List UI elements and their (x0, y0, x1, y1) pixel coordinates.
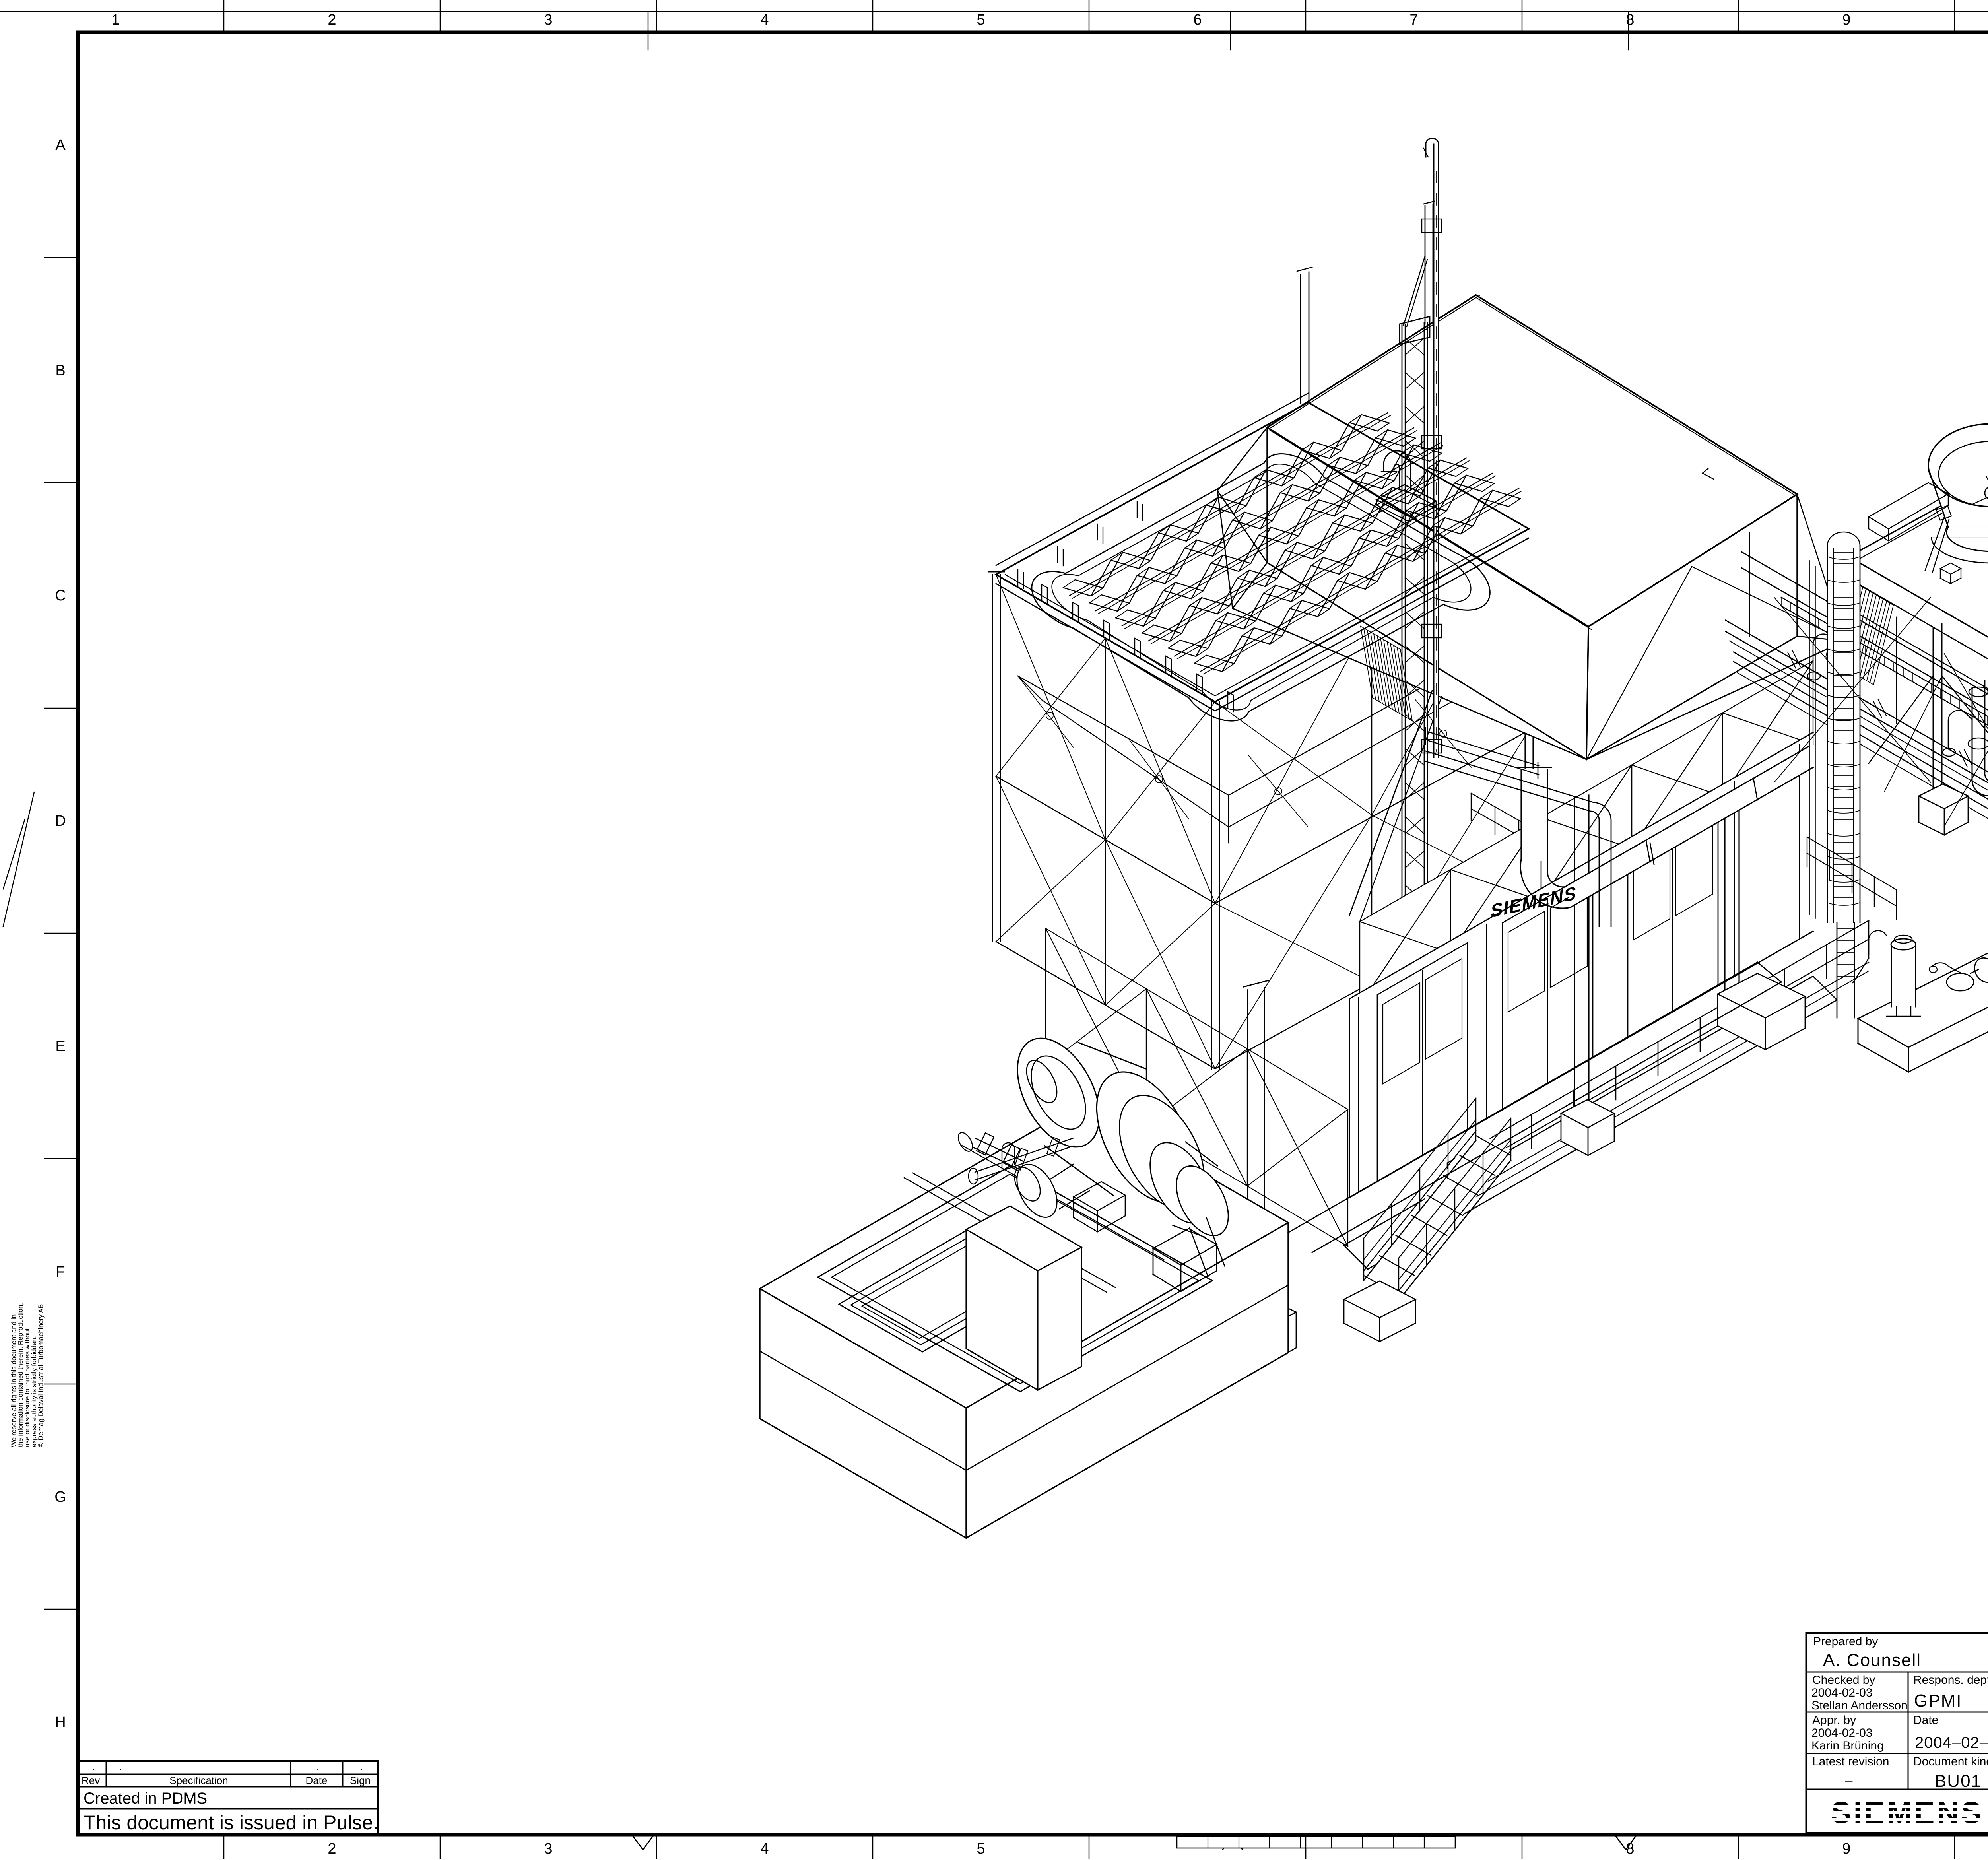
svg-text:Karin Brüning: Karin Brüning (1811, 1739, 1884, 1752)
svg-text:A: A (55, 137, 66, 153)
svg-text:Rev: Rev (82, 1775, 100, 1786)
svg-text:Prepared by: Prepared by (1813, 1635, 1878, 1648)
svg-text:.: . (119, 1762, 122, 1773)
svg-text:9: 9 (1842, 12, 1850, 28)
svg-text:3: 3 (544, 1841, 552, 1857)
svg-text:Stellan Andersson: Stellan Andersson (1811, 1699, 1908, 1712)
svg-text:This document is issued in Pul: This document is issued in Pulse. (83, 1811, 379, 1834)
svg-text:–: – (1845, 1773, 1853, 1788)
svg-text:5: 5 (977, 12, 985, 28)
svg-text:Date: Date (1913, 1714, 1938, 1727)
svg-text:2: 2 (328, 1841, 336, 1857)
svg-text:D: D (55, 813, 66, 829)
svg-text:Specification: Specification (169, 1775, 228, 1786)
svg-text:7: 7 (1409, 12, 1418, 28)
svg-text:GPMI: GPMI (1914, 1691, 1962, 1711)
svg-text:2: 2 (328, 12, 336, 28)
svg-text:C: C (55, 587, 66, 604)
svg-text:2004–02–01: 2004–02–01 (1915, 1734, 1988, 1751)
svg-text:Sign: Sign (350, 1775, 371, 1786)
svg-text:Appr. by: Appr. by (1812, 1714, 1856, 1727)
svg-text:.: . (316, 1762, 319, 1773)
svg-text:E: E (55, 1038, 65, 1055)
svg-text:2004-02-03: 2004-02-03 (1811, 1726, 1872, 1740)
svg-text:Document kind: Document kind (1913, 1755, 1988, 1768)
svg-text:4: 4 (760, 1841, 769, 1857)
svg-text:BU01: BU01 (1935, 1771, 1982, 1791)
svg-text:1: 1 (111, 12, 120, 28)
svg-text:5: 5 (977, 1841, 985, 1857)
svg-text:G: G (54, 1489, 66, 1505)
svg-text:.: . (360, 1762, 363, 1773)
svg-text:Checked by: Checked by (1812, 1674, 1875, 1687)
svg-text:A. Counsell: A. Counsell (1823, 1650, 1921, 1670)
svg-text:Created in PDMS: Created in PDMS (83, 1790, 207, 1807)
svg-text:B: B (55, 362, 65, 379)
svg-text:Date: Date (306, 1775, 328, 1786)
svg-text:3: 3 (544, 12, 552, 28)
svg-text:8: 8 (1626, 12, 1634, 28)
svg-text:9: 9 (1842, 1841, 1850, 1857)
svg-text:.: . (92, 1762, 95, 1773)
svg-text:H: H (55, 1714, 66, 1731)
svg-text:2004-02-03: 2004-02-03 (1811, 1686, 1872, 1699)
svg-text:6: 6 (1193, 12, 1202, 28)
svg-text:F: F (56, 1264, 65, 1280)
svg-text:Latest revision: Latest revision (1812, 1755, 1889, 1768)
svg-text:Respons. dept.: Respons. dept. (1913, 1674, 1988, 1687)
svg-text:4: 4 (760, 12, 769, 28)
